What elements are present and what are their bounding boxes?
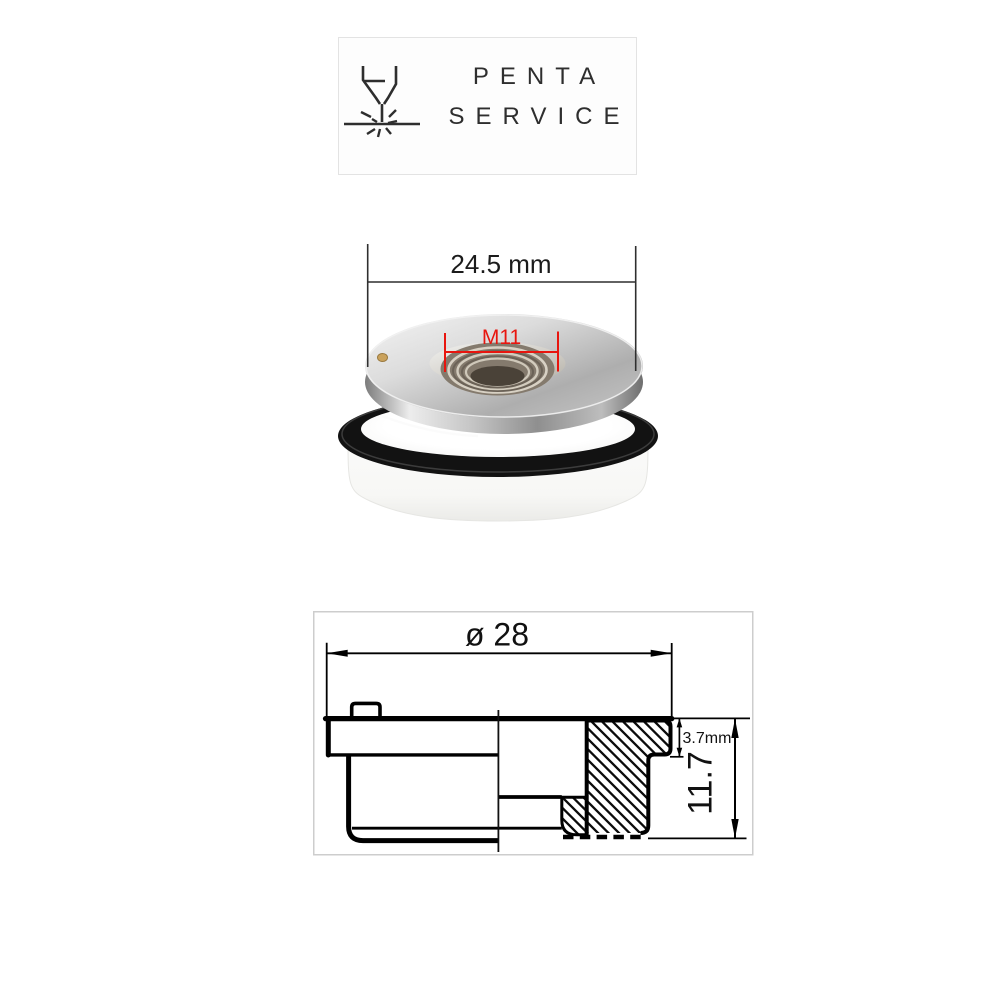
technical-drawing: ø 28 3.7mm — [313, 611, 754, 856]
bore-shadow — [471, 366, 525, 386]
index-tab — [352, 703, 380, 717]
ceramic-ring-photo: 24.5 mm M11 — [310, 230, 690, 530]
brand-logo: PENTA SERVICE — [338, 37, 637, 175]
laser-cutting-head-icon — [341, 58, 426, 148]
step-height-label: 3.7mm — [683, 730, 732, 747]
diameter-label: ø 28 — [465, 617, 529, 653]
width-dimension-label: 24.5 mm — [450, 249, 551, 279]
brand-line-2: SERVICE — [438, 103, 631, 131]
gold-pin — [378, 354, 388, 362]
thread-dimension-label: M11 — [482, 326, 521, 349]
brand-line-1: PENTA — [462, 63, 606, 91]
total-height-label: 11.7 — [682, 751, 720, 815]
brand-name: PENTA SERVICE — [431, 57, 637, 137]
section-lip — [562, 797, 587, 835]
cross-section-drawing: ø 28 3.7mm — [313, 611, 754, 856]
page: PENTA SERVICE — [0, 0, 990, 990]
product-photo: 24.5 mm M11 — [310, 230, 690, 530]
